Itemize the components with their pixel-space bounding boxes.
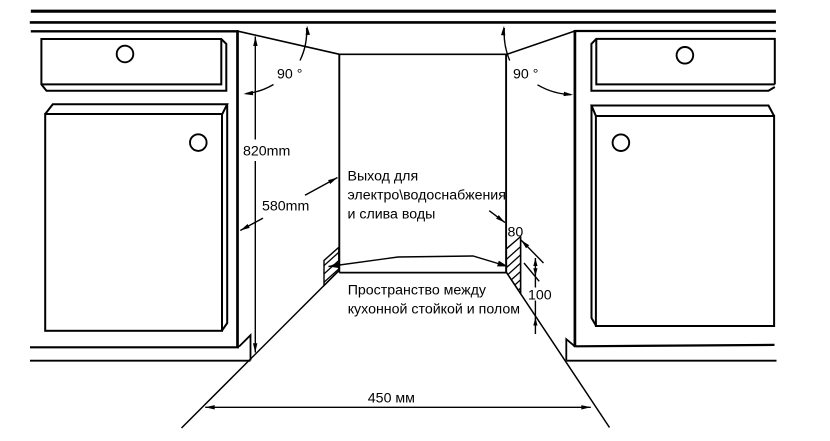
svg-text:100: 100 [528,287,552,303]
svg-text:и слива воды: и слива воды [348,207,436,223]
svg-text:450 мм: 450 мм [368,390,415,406]
svg-text:580mm: 580mm [262,198,309,214]
svg-text:Выход для: Выход для [348,169,419,185]
svg-text:820mm: 820mm [243,143,290,159]
svg-text:Пространство между: Пространство между [348,282,487,298]
svg-text:90 °: 90 ° [513,67,538,83]
svg-text:кухонной стойкой и полом: кухонной стойкой и полом [348,302,520,318]
svg-text:электро\водоснабжения: электро\водоснабжения [348,188,506,204]
svg-text:90 °: 90 ° [277,66,302,82]
